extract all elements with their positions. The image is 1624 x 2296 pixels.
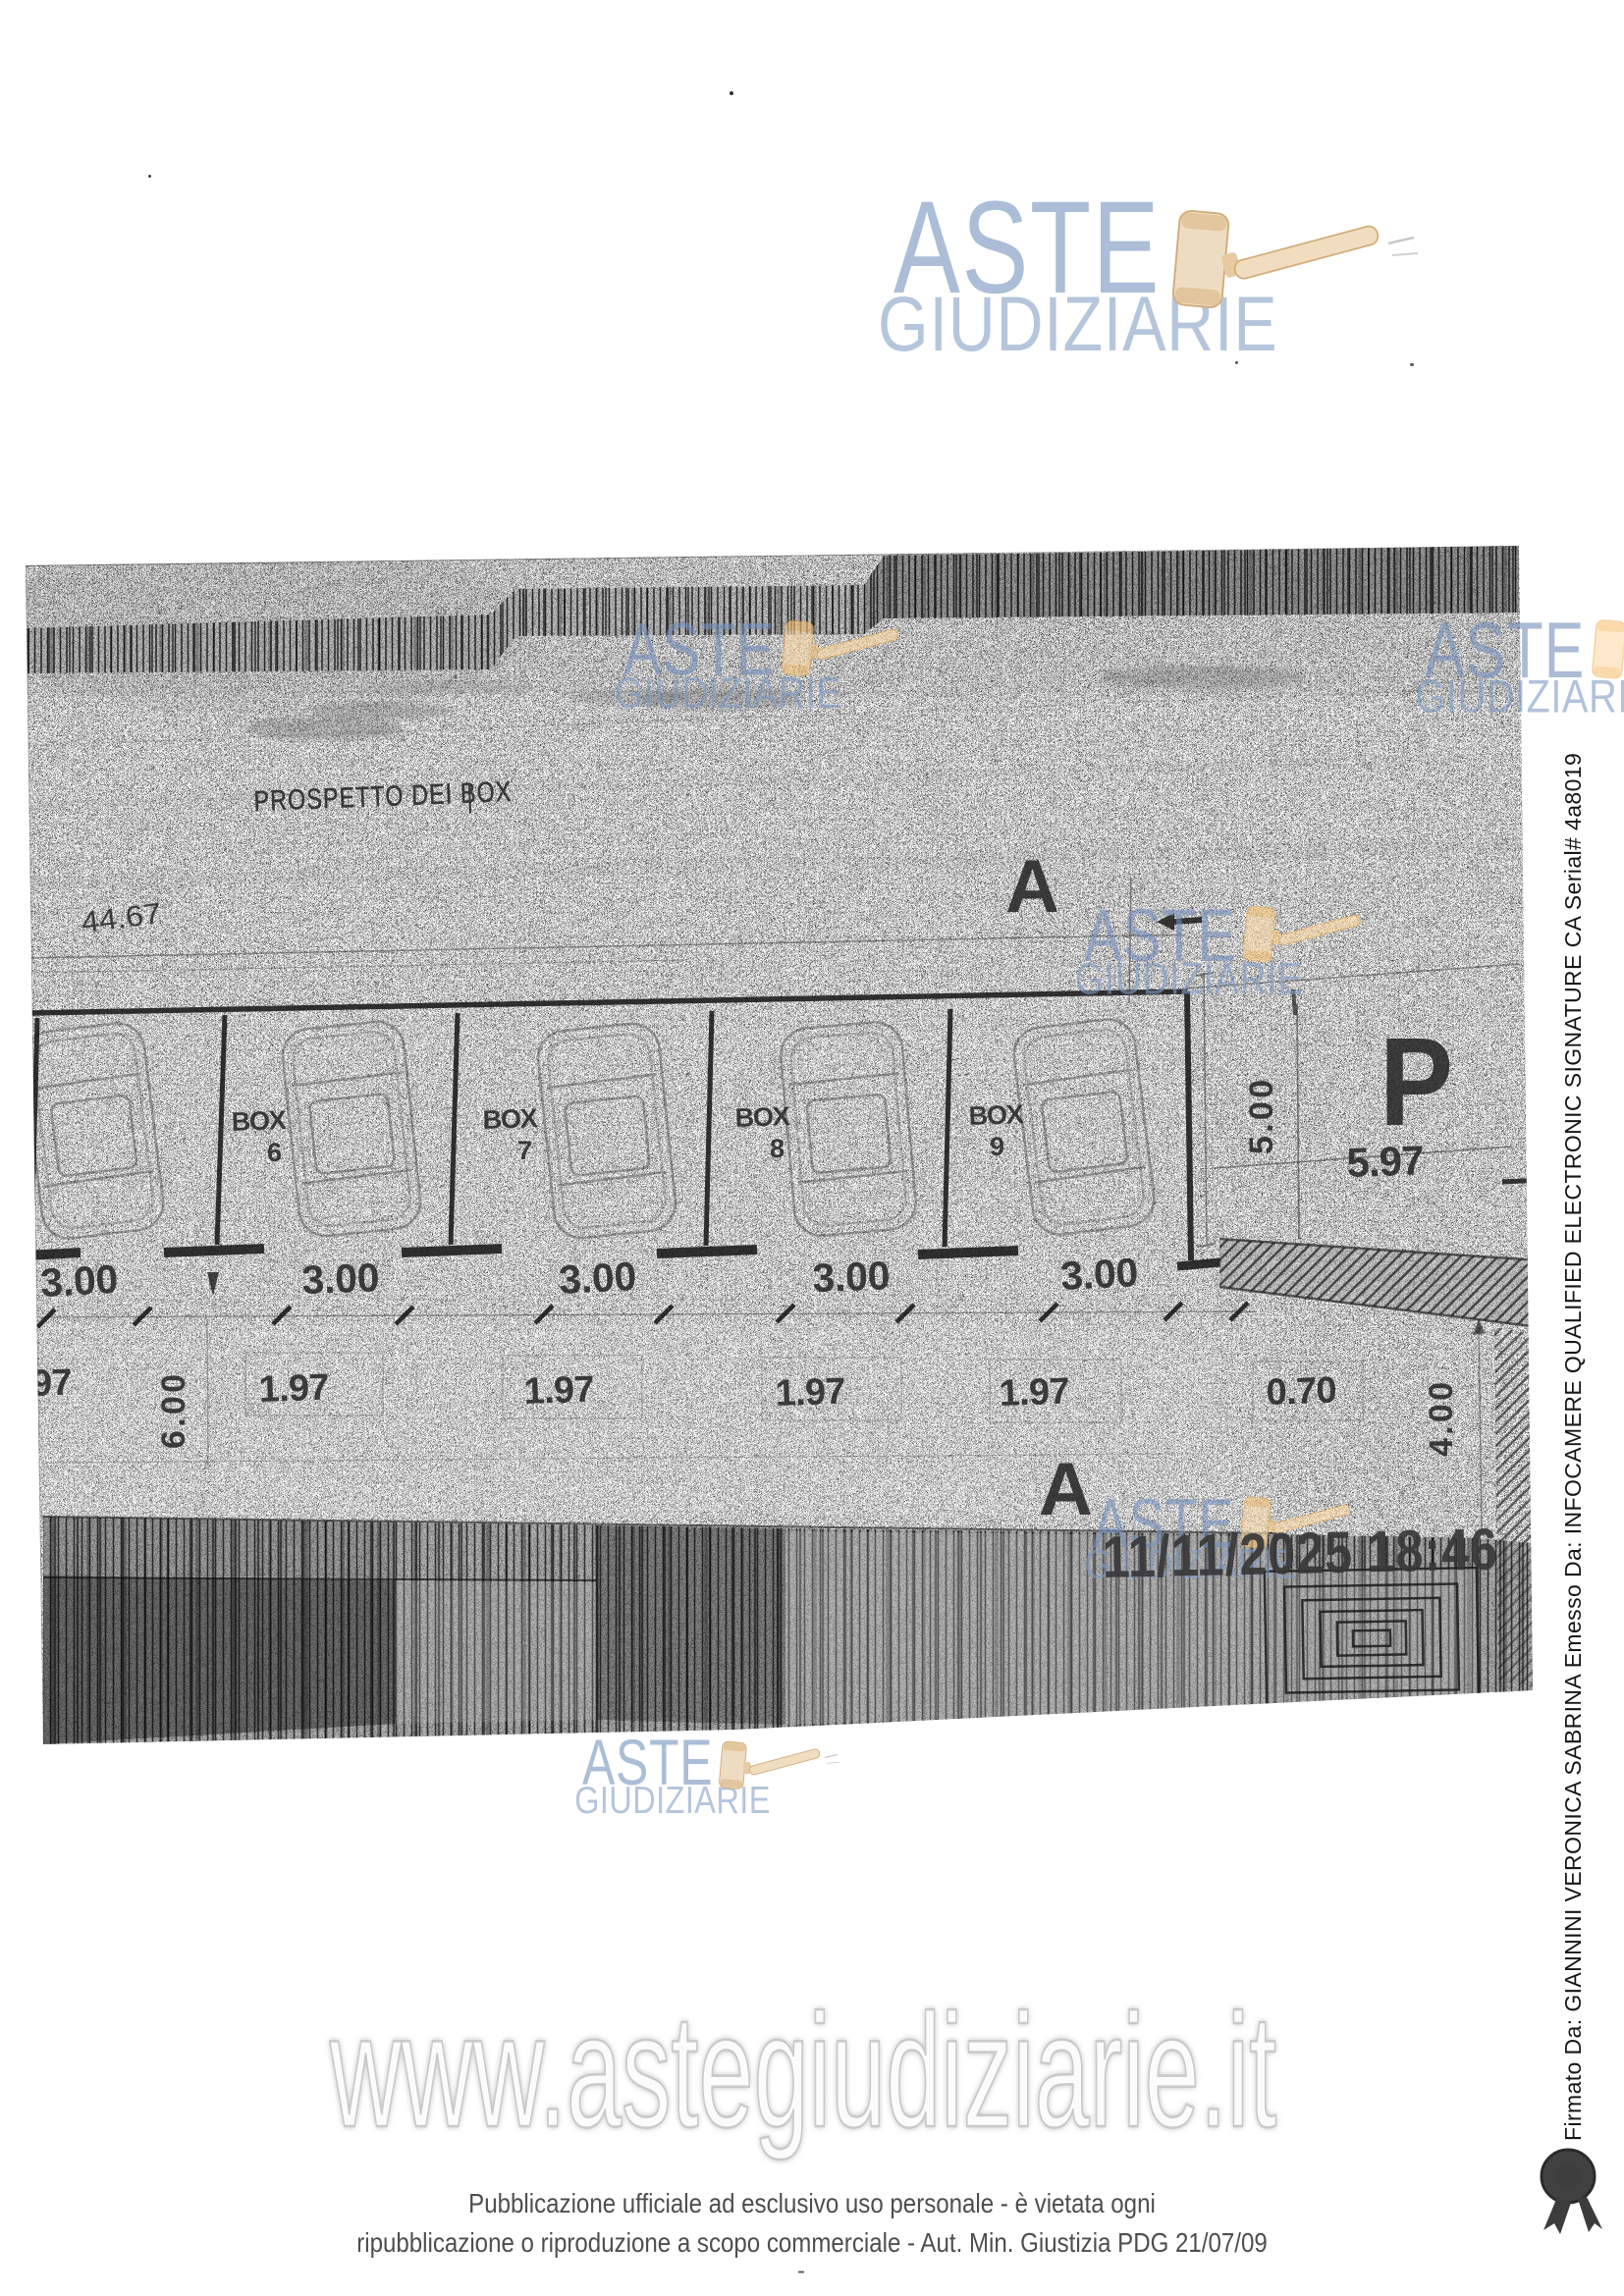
svg-text:8: 8	[770, 1134, 786, 1163]
svg-text:1.97: 1.97	[775, 1371, 846, 1415]
svg-text:5.00: 5.00	[1243, 1080, 1280, 1154]
svg-text:0.70: 0.70	[1266, 1370, 1337, 1414]
svg-text:3.00: 3.00	[1059, 1250, 1139, 1299]
svg-text:BOX: BOX	[968, 1099, 1026, 1131]
svg-text:3.00: 3.00	[812, 1253, 892, 1301]
svg-text:6: 6	[267, 1138, 284, 1167]
svg-text:3.00: 3.00	[39, 1256, 119, 1306]
svg-text:BOX: BOX	[482, 1103, 540, 1135]
svg-text:9: 9	[990, 1132, 1006, 1161]
svg-text:A: A	[1039, 1448, 1093, 1531]
svg-text:BOX: BOX	[734, 1101, 792, 1133]
svg-text:4.00: 4.00	[1423, 1382, 1460, 1457]
svg-text:1.97: 1.97	[999, 1371, 1070, 1415]
svg-text:3.00: 3.00	[558, 1254, 637, 1303]
svg-text:5.97: 5.97	[1346, 1137, 1426, 1186]
svg-text:7: 7	[517, 1136, 534, 1165]
svg-text:BOX: BOX	[231, 1105, 289, 1137]
svg-text:1.97: 1.97	[258, 1367, 330, 1411]
svg-text:3.00: 3.00	[301, 1255, 381, 1303]
svg-text:1.97: 1.97	[1, 1362, 73, 1406]
svg-text:A: A	[1005, 845, 1059, 929]
svg-text:1.97: 1.97	[523, 1369, 595, 1413]
svg-text:P: P	[1380, 1012, 1453, 1152]
svg-text:6.00: 6.00	[155, 1374, 192, 1449]
